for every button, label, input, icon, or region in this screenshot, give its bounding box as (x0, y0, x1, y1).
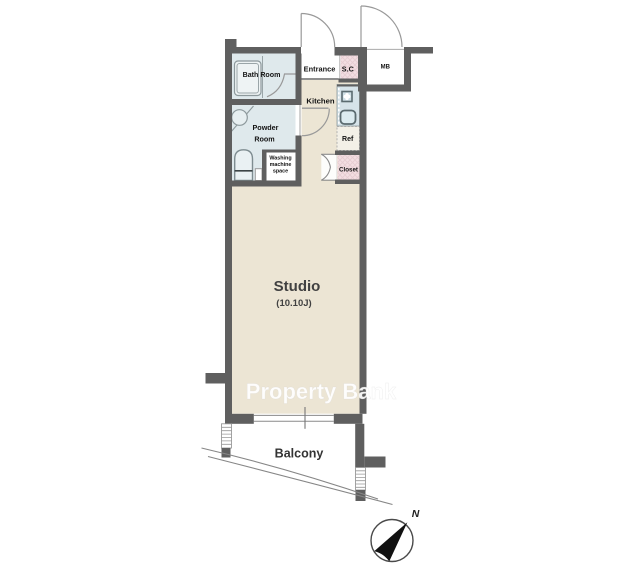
svg-text:(10.10J): (10.10J) (276, 298, 311, 309)
svg-text:Washing: Washing (269, 156, 291, 162)
svg-text:Studio: Studio (274, 278, 321, 295)
svg-text:Kitchen: Kitchen (306, 97, 334, 106)
svg-text:space: space (273, 169, 288, 175)
svg-text:S.C: S.C (342, 65, 354, 74)
svg-text:Property Bank: Property Bank (246, 379, 397, 404)
svg-text:Bath Room: Bath Room (243, 71, 281, 79)
svg-text:Ref: Ref (342, 136, 354, 143)
svg-text:Closet: Closet (339, 167, 358, 174)
svg-text:MB: MB (381, 64, 391, 70)
svg-text:N: N (412, 508, 420, 520)
svg-text:Entrance: Entrance (304, 64, 336, 73)
svg-text:machine: machine (270, 162, 292, 168)
svg-text:Balcony: Balcony (275, 446, 324, 460)
svg-text:Powder: Powder (253, 123, 279, 132)
svg-text:Room: Room (254, 134, 274, 143)
